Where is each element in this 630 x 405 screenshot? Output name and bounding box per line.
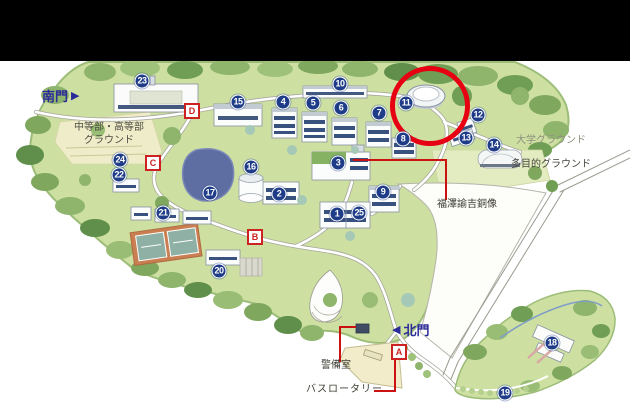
building-marker-3[interactable]: 3 [331,156,346,171]
bus-rotary-label: バスロータリー [306,384,383,397]
guard-house [356,324,369,333]
guard-room-label: 警備室 [321,360,351,373]
campus-map-page: 南門▶ ◀北門 中等部・高等部 グラウンド 大学グラウンド 多目的グラウンド 福… [0,0,630,405]
busrotary-callout-line-v [394,357,396,392]
north-gate-label: ◀北門 [392,320,429,339]
building-marker-12[interactable]: 12 [471,108,486,123]
building-marker-7[interactable]: 7 [372,106,387,121]
building-marker-9[interactable]: 9 [376,185,391,200]
building-marker-11[interactable]: 11 [399,96,414,111]
building-marker-18[interactable]: 18 [545,336,560,351]
south-gate-arrow-icon: ▶ [71,89,79,102]
building-marker-24[interactable]: 24 [113,153,128,168]
north-gate-text: 北門 [403,320,429,339]
building-marker-10[interactable]: 10 [333,77,348,92]
building-marker-19[interactable]: 19 [498,386,513,401]
top-black-bar [0,0,630,61]
junior-senior-ground-label: 中等部・高等部 グラウンド [68,122,150,147]
building-marker-8[interactable]: 8 [396,132,411,147]
building-marker-20[interactable]: 20 [212,264,227,279]
multipurpose-ground-label: 多目的グラウンド [511,159,591,172]
building-marker-15[interactable]: 15 [231,95,246,110]
fukuzawa-callout-line-h [353,159,446,161]
building-marker-1[interactable]: 1 [330,207,345,222]
university-ground-label: 大学グラウンド [516,135,586,148]
building-marker-2[interactable]: 2 [272,187,287,202]
point-marker-A[interactable]: A [391,344,407,360]
building-marker-13[interactable]: 13 [459,131,474,146]
building-marker-21[interactable]: 21 [156,206,171,221]
guardroom-callout-line-v [339,326,341,362]
guardroom-callout-line-h [339,326,356,328]
point-marker-C[interactable]: C [145,155,161,171]
north-gate-arrow-icon: ◀ [392,323,400,336]
building-marker-5[interactable]: 5 [306,96,321,111]
building-marker-23[interactable]: 23 [135,74,150,89]
building-marker-4[interactable]: 4 [276,95,291,110]
building-marker-14[interactable]: 14 [487,138,502,153]
point-marker-B[interactable]: B [247,229,263,245]
south-gate-text: 南門 [42,86,68,105]
building-marker-6[interactable]: 6 [334,101,349,116]
fukuzawa-statue-label: 福澤諭吉銅像 [437,199,497,212]
building-marker-16[interactable]: 16 [244,160,259,175]
building-marker-25[interactable]: 25 [352,206,367,221]
building-marker-17[interactable]: 17 [203,186,218,201]
bus-rotary-area [340,342,431,388]
fukuzawa-callout-line-v [445,159,447,200]
point-marker-D[interactable]: D [184,103,200,119]
building-marker-22[interactable]: 22 [112,168,127,183]
south-gate-label: 南門▶ [42,86,79,105]
